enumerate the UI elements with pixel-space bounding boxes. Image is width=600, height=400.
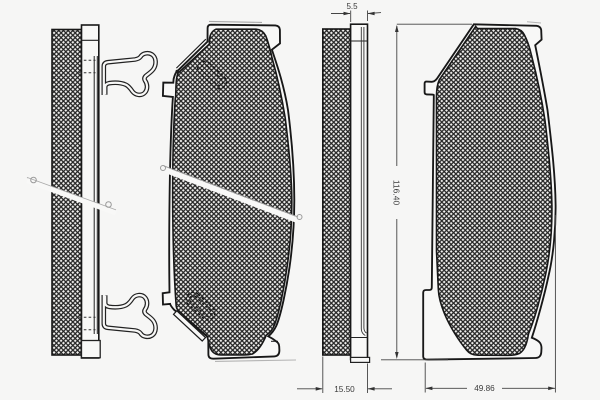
svg-text:15.50: 15.50 [334,385,355,394]
svg-text:49.86: 49.86 [474,384,495,393]
svg-text:5.5: 5.5 [346,2,358,11]
svg-text:116.40: 116.40 [392,180,402,206]
